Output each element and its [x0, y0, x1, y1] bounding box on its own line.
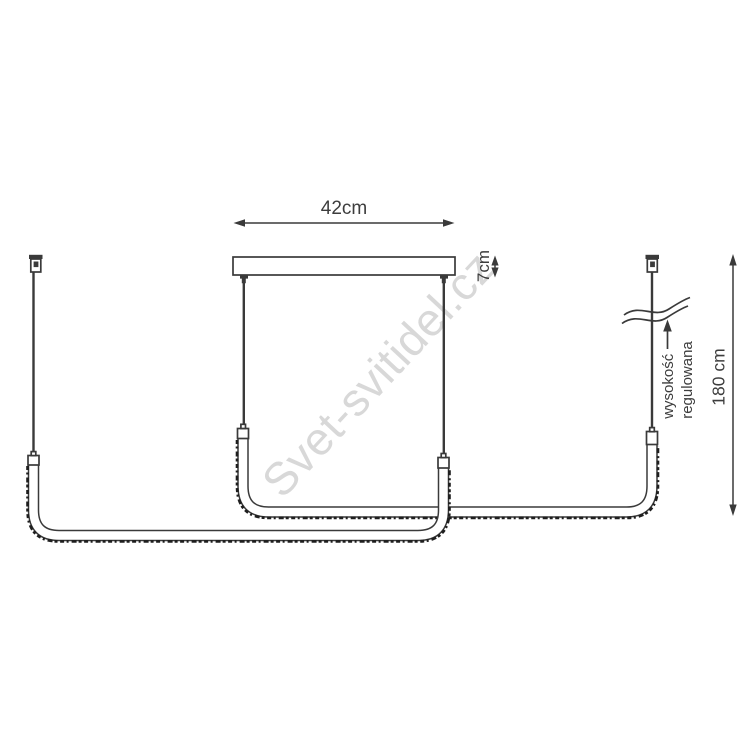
- ceiling-mount-left: [29, 255, 43, 272]
- dimension-42cm-arrow: [234, 219, 455, 227]
- tube-cap-nub: [441, 454, 446, 458]
- adjustable-height-label: wysokość regulowana: [659, 341, 697, 419]
- tube-cap-nub: [650, 428, 655, 432]
- cable-break-symbol: [622, 298, 690, 324]
- tube-cap: [647, 432, 658, 445]
- tube-cap-nub: [31, 452, 36, 456]
- adjustable-height-line1: wysokość: [659, 341, 678, 419]
- adjustable-height-line2: regulowana: [678, 341, 697, 419]
- tube-cap: [238, 429, 249, 439]
- tube-cap: [438, 458, 449, 469]
- ceiling-mount-right: [646, 255, 660, 272]
- suspension-wires: [34, 272, 653, 454]
- suspension-height-label: 180 cm: [709, 348, 730, 405]
- tube-cap: [28, 456, 39, 466]
- lamp-line-art: [0, 0, 750, 750]
- ceiling-canopy: [233, 257, 455, 283]
- canopy-gland-left: [240, 275, 248, 283]
- canopy-width-label: 42cm: [233, 198, 455, 220]
- canopy-height-label: 7cm: [474, 250, 494, 282]
- dimension-drawing: Svet-svitidel.cz: [0, 0, 750, 750]
- dimension-180cm-arrow: [729, 254, 736, 516]
- canopy-gland-right: [440, 275, 448, 283]
- tube-cap-nub: [241, 424, 246, 428]
